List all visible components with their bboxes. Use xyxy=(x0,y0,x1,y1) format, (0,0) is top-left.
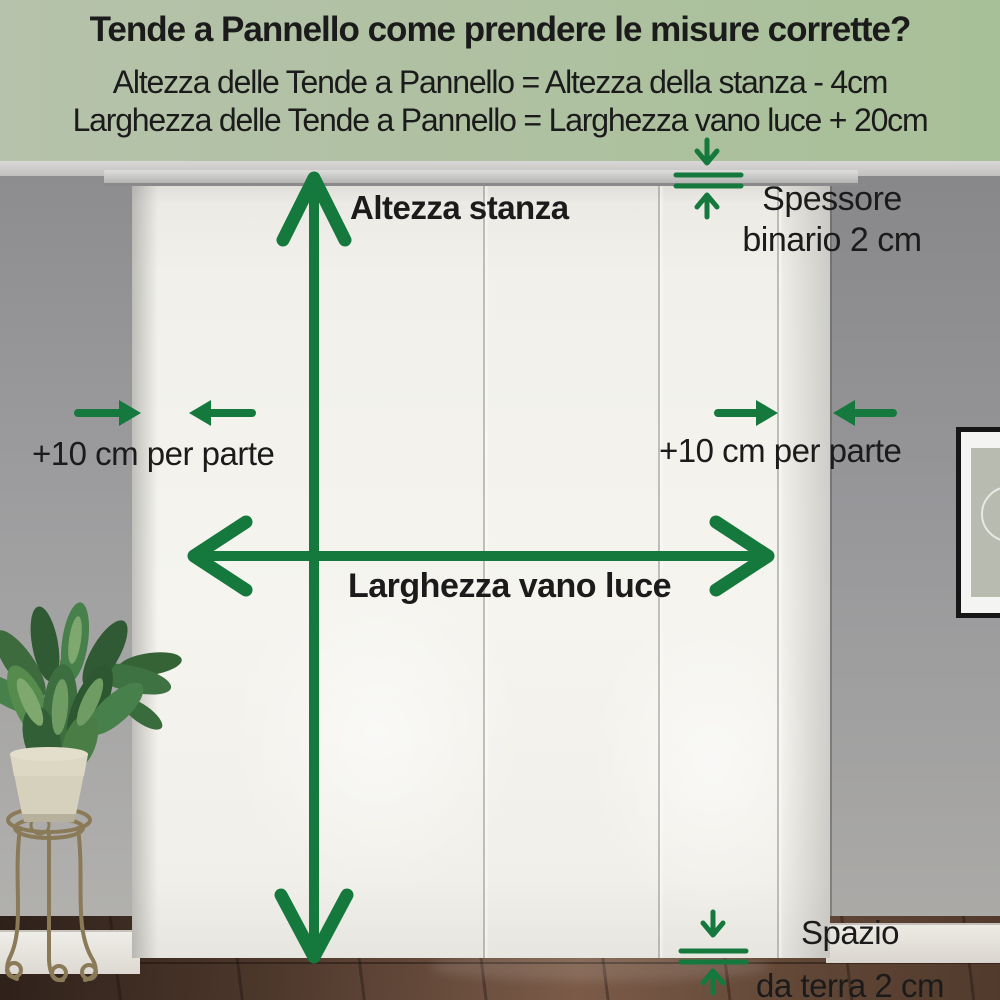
plant-stand xyxy=(7,808,96,980)
potted-plant xyxy=(0,582,210,1000)
rail-thickness-line1: Spessore xyxy=(762,180,902,218)
infographic-canvas: Tende a Pannello come prendere le misure… xyxy=(0,0,1000,1000)
allowance-left-label: +10 cm per parte xyxy=(32,435,274,473)
allowance-right-label: +10 cm per parte xyxy=(659,432,901,470)
header-band: Tende a Pannello come prendere le misure… xyxy=(0,0,1000,161)
wall-art-print xyxy=(971,448,1000,597)
formula-height: Altezza delle Tende a Pannello = Altezza… xyxy=(0,64,1000,101)
plant-pot xyxy=(10,747,88,822)
floor-gap-label: Spazio da terra 2 cm xyxy=(744,906,956,1000)
wall-art-frame xyxy=(956,427,1000,618)
wall-art-mat xyxy=(961,432,1000,613)
wall-art-circle xyxy=(981,486,1000,542)
curtain-highlight xyxy=(227,570,527,900)
opening-width-label: Larghezza vano luce xyxy=(348,567,671,606)
formula-width: Larghezza delle Tende a Pannello = Largh… xyxy=(0,102,1000,139)
page-title: Tende a Pannello come prendere le misure… xyxy=(0,10,1000,50)
floor-gap-line1: Spazio xyxy=(801,914,899,951)
floor-gap-line2: da terra 2 cm xyxy=(756,967,944,1000)
rail-thickness-label: Spessore binario 2 cm xyxy=(727,179,937,261)
rail-thickness-line2: binario 2 cm xyxy=(742,221,921,259)
curtain-shadow-right xyxy=(777,180,830,958)
room-height-label: Altezza stanza xyxy=(350,189,569,227)
